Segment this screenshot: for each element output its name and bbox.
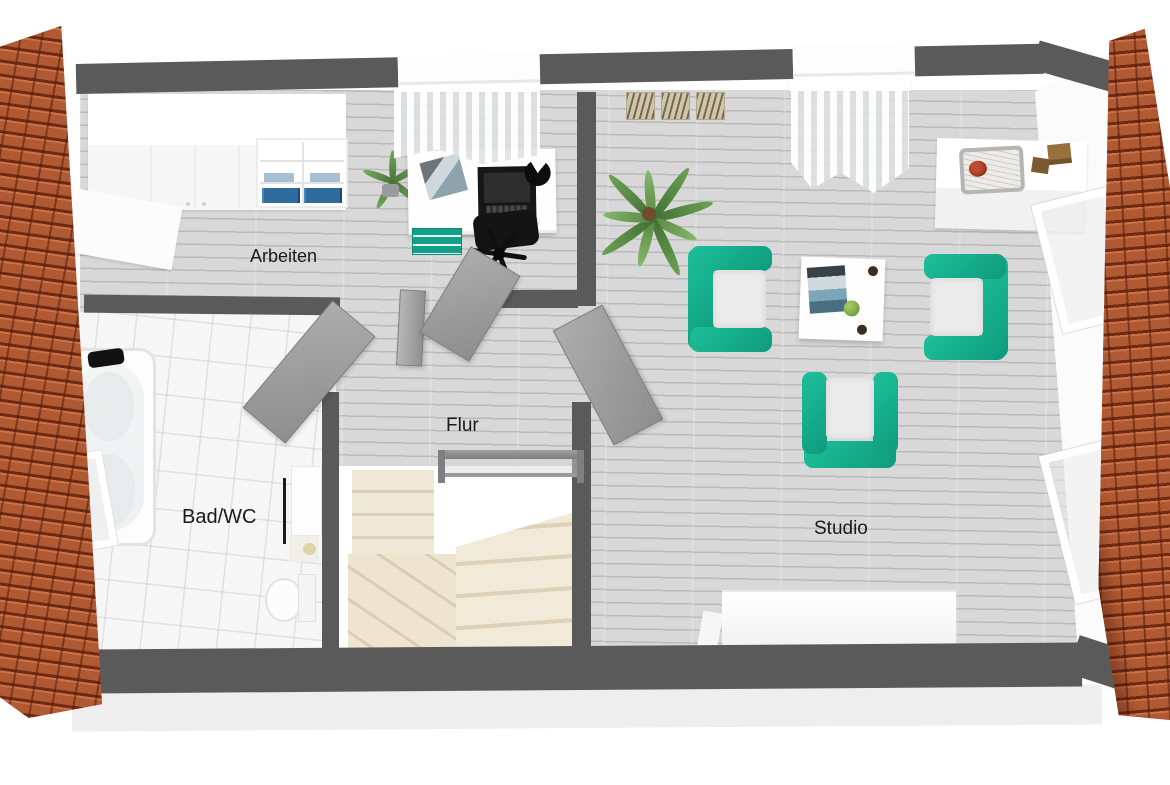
wooden-box [1031,157,1050,174]
magazine [419,153,467,200]
wall-office-bath [84,295,340,316]
wall-artwork-triptych [626,92,725,120]
blue-books [310,173,340,182]
decorative-tray [959,145,1025,194]
bathroom-vanity [291,466,322,536]
artwork-panel [696,92,725,120]
studio-window-curtain [791,91,909,193]
floorplan-scene: Arbeiten Flur Bad/WC Studio [0,0,1170,785]
room-label-flur: Flur [446,415,479,437]
studio-window-pelmet [789,78,911,91]
wall-office-flur [500,290,578,308]
railing-glass-panel [443,459,579,473]
towel-rail [283,478,286,544]
coffee-cup [868,266,878,276]
exterior-wall-bottom [90,643,1082,694]
red-flower-decor [969,160,988,177]
armchair-arm [873,372,898,454]
studio-window-sill [793,42,916,77]
office-window-sill [398,52,541,85]
railing-bottom-rail [443,473,579,477]
armchair-cushion [930,278,983,336]
wooden-box [1047,143,1072,165]
blue-binders [262,188,300,203]
stairwell [338,466,588,652]
artwork-panel [661,92,690,120]
monitor-screen [484,172,531,203]
studio-bench [722,590,956,648]
office-window-curtain [394,92,540,164]
toilet-tank [298,574,316,622]
wall-office-studio [577,92,596,306]
railing-handrail [438,450,584,459]
armchair-teal-bottom [802,372,898,468]
armchair-arm [690,327,772,352]
blue-books [264,173,294,182]
armchair-cushion [713,270,766,328]
wardrobe-handle [186,202,190,206]
railing-post [438,450,445,483]
room-label-bad: Bad/WC [182,506,256,529]
stairs-winder-steps [348,554,472,652]
room-label-studio: Studio [814,518,868,540]
wall-stair-studio [572,402,591,650]
magazine [807,265,848,314]
stair-railing [438,450,584,484]
artwork-panel [626,92,655,120]
office-bookshelf [256,138,348,208]
wardrobe-door-seam [238,146,240,207]
armchair-arm [924,335,1006,360]
wall-segment [76,57,399,94]
wardrobe-handle [202,202,206,206]
coffee-cup [857,325,867,335]
plant-pot [382,184,399,197]
armchair-arm [802,372,827,454]
teal-drawer-unit [412,228,462,255]
armchair-teal-right [924,254,1008,360]
armchair-cushion [826,377,874,439]
armchair-teal-left [688,246,772,352]
wall-segment [915,44,1045,77]
room-label-arbeiten: Arbeiten [250,246,317,267]
coffee-table [799,257,886,342]
wardrobe-door-seam [150,146,152,207]
chair-hub [493,248,505,260]
palm-trunk [642,207,656,221]
soap-dish [303,543,316,555]
blue-binders [304,188,342,203]
armchair-arm [924,254,1006,279]
stairs-lower-flight [456,502,588,652]
green-apple-decor [843,300,860,317]
railing-post [577,450,584,483]
wall-bath-flur [322,392,339,650]
wall-segment [540,49,794,84]
wardrobe-door-seam [194,146,196,207]
armchair-arm [690,246,772,271]
